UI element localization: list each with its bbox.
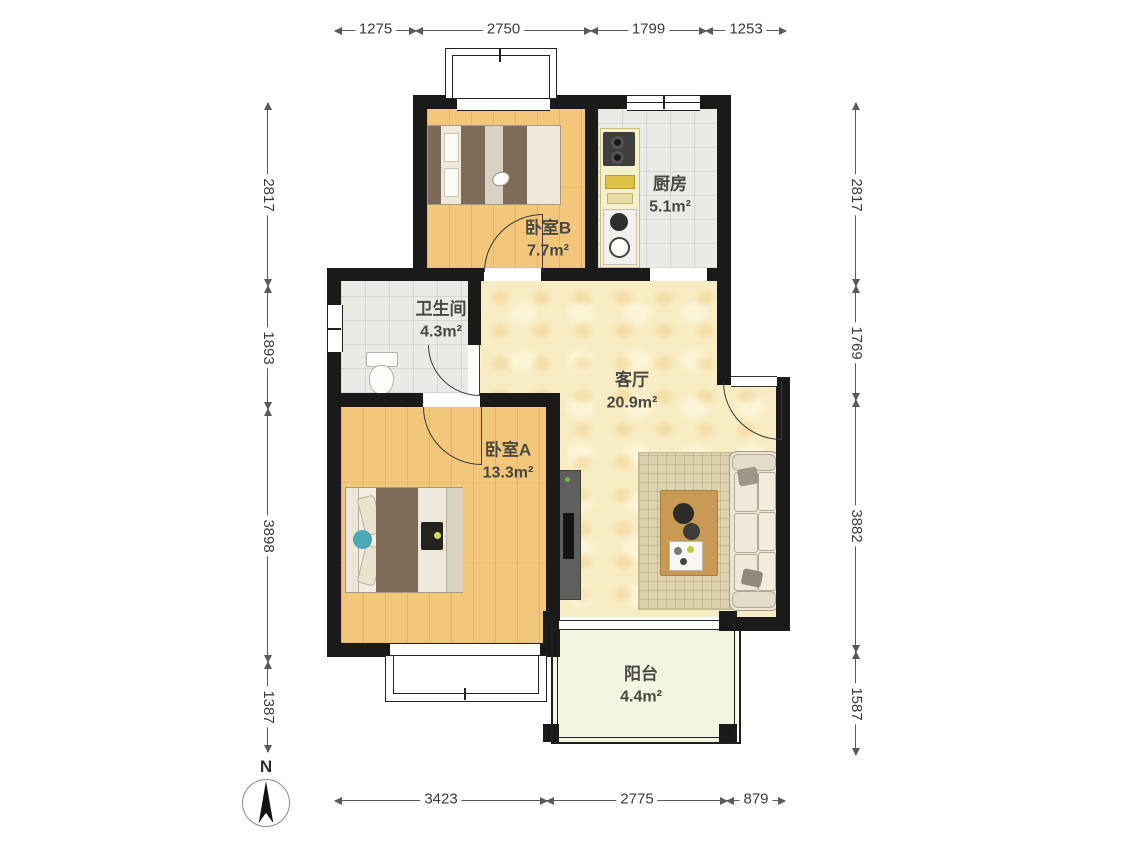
dim-label: 1893 (259, 327, 277, 368)
bay-window-frame-inner (393, 655, 539, 694)
dim-label: 879 (739, 791, 772, 810)
dimension-right-3: 3882 (855, 400, 856, 652)
dimension-left-2: 1893 (267, 286, 268, 409)
room-area: 4.4m² (620, 687, 662, 709)
dim-label: 1253 (725, 21, 766, 40)
toilet (366, 352, 396, 396)
room-label-bedroom-b: 卧室B 7.7m² (525, 218, 571, 263)
dimension-top-3: 1799 (591, 30, 706, 31)
dim-label: 1799 (628, 21, 669, 40)
room-name: 阳台 (620, 664, 662, 687)
dim-label: 1769 (847, 322, 865, 363)
window-mullion (327, 328, 341, 330)
floor-plan-canvas: 卧室B 7.7m² 厨房 5.1m² 卫生间 4.3m² 客厅 20.9m² 卧… (0, 0, 1125, 844)
stove-burner (611, 136, 624, 149)
room-name: 卧室A (483, 440, 534, 463)
dimension-left-4: 1387 (267, 662, 268, 752)
wall-segment (585, 95, 598, 281)
wall-segment (707, 268, 731, 281)
sofa-armrest (732, 591, 776, 608)
dim-label: 3898 (259, 515, 277, 556)
bed-pillow (444, 168, 459, 197)
dim-label: 1387 (259, 686, 277, 727)
room-label-bathroom: 卫生间 4.3m² (416, 299, 467, 344)
room-name: 卫生间 (416, 299, 467, 322)
pot-icon (610, 213, 628, 231)
bed-bench (446, 488, 463, 592)
sofa-seat-cushion (734, 513, 758, 553)
dimension-bottom-1: 3423 (335, 800, 547, 801)
sofa-back-cushion (758, 472, 776, 511)
dim-label: 2775 (616, 791, 657, 810)
counter-item (607, 193, 633, 204)
room-area: 20.9m² (607, 393, 658, 415)
kettle-icon (609, 237, 630, 258)
tray-item (680, 558, 687, 565)
bed-pillow (444, 133, 459, 162)
compass: N (238, 758, 294, 834)
tray-item (687, 546, 694, 553)
dimension-left-3: 3898 (267, 409, 268, 662)
coffee-table (660, 490, 718, 576)
bed-double-a (345, 487, 463, 593)
dim-label: 3423 (420, 791, 461, 810)
room-label-kitchen: 厨房 5.1m² (649, 174, 691, 219)
bed-double-b (427, 125, 561, 205)
window-mullion (663, 95, 665, 109)
room-label-bedroom-a: 卧室A 13.3m² (483, 440, 534, 485)
room-label-balcony: 阳台 4.4m² (620, 664, 662, 709)
kitchen-counter (600, 128, 640, 268)
dim-label: 3882 (847, 505, 865, 546)
room-name: 客厅 (607, 370, 658, 393)
dimension-right-2: 1769 (855, 286, 856, 400)
tray-dot (434, 532, 441, 539)
window-mullion (464, 688, 466, 700)
bed-duvet (376, 488, 418, 592)
bed-duvet (461, 126, 527, 204)
compass-north-label: N (238, 758, 294, 775)
room-area: 4.3m² (416, 322, 467, 344)
dim-label: 1275 (355, 21, 396, 40)
dimension-bottom-2: 2775 (547, 800, 727, 801)
cup-icon (683, 523, 700, 540)
dim-label: 2817 (259, 174, 277, 215)
room-area: 13.3m² (483, 463, 534, 485)
compass-circle (242, 779, 290, 827)
wall-segment (541, 268, 650, 281)
tv-icon (563, 513, 574, 559)
room-label-living: 客厅 20.9m² (607, 370, 658, 415)
bed-headboard (428, 126, 441, 204)
wall-segment (717, 95, 731, 385)
dimension-top-1: 1275 (335, 30, 416, 31)
dimension-right-4: 1587 (855, 652, 856, 755)
compass-needle-icon (253, 781, 279, 823)
throw-pillow (737, 466, 760, 486)
dimension-left-1: 2817 (267, 103, 268, 286)
toilet-bowl (369, 365, 394, 395)
stove-burner (611, 151, 624, 164)
dimension-top-4: 1253 (706, 30, 786, 31)
tray-item (674, 547, 682, 555)
sofa (729, 451, 779, 611)
exterior-mask (731, 55, 901, 377)
bay-window-frame-inner (452, 55, 550, 99)
serving-tray (669, 541, 703, 571)
cutting-board (605, 175, 635, 189)
wall-segment (327, 643, 390, 657)
wall-segment (413, 95, 427, 281)
room-name: 卧室B (525, 218, 571, 241)
dimension-bottom-3: 879 (727, 800, 785, 801)
dim-label: 1587 (847, 683, 865, 724)
room-name: 厨房 (649, 174, 691, 197)
round-cushion (353, 530, 372, 549)
window-mullion (499, 48, 501, 62)
tv-cabinet (559, 470, 581, 600)
teapot-icon (673, 503, 694, 524)
dim-label: 2817 (847, 174, 865, 215)
wall-segment (468, 281, 481, 345)
room-area: 7.7m² (525, 241, 571, 263)
dim-label: 2750 (483, 21, 524, 40)
wall-segment (327, 268, 484, 281)
sofa-back-cushion (758, 512, 776, 551)
wall-segment (341, 393, 423, 407)
balcony-slider (559, 620, 719, 630)
plant-dot (565, 477, 570, 482)
room-area: 5.1m² (649, 197, 691, 219)
dimension-right-1: 2817 (855, 103, 856, 286)
dimension-top-2: 2750 (416, 30, 591, 31)
